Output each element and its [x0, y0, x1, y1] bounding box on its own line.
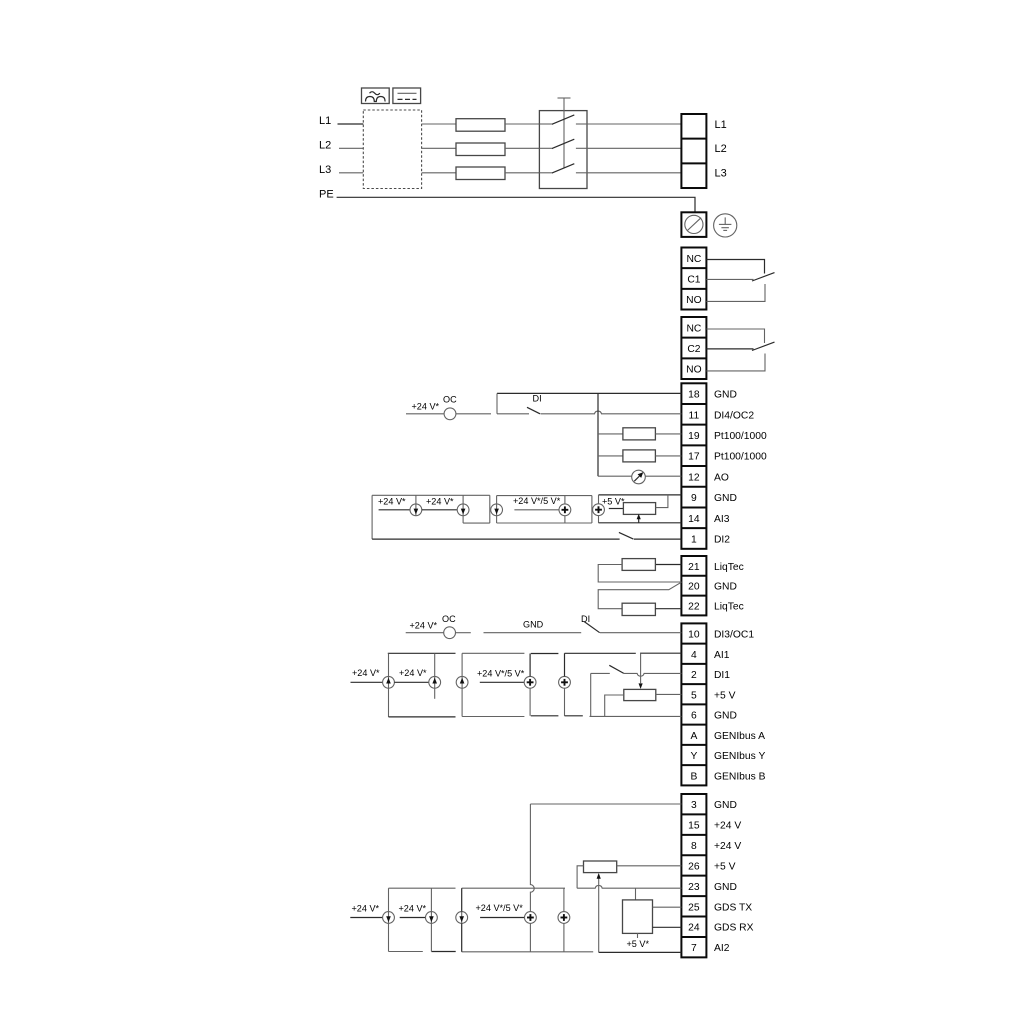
svg-text:18: 18: [688, 390, 700, 401]
svg-text:6: 6: [691, 711, 697, 722]
svg-text:NO: NO: [686, 365, 701, 376]
svg-text:AI2: AI2: [714, 943, 730, 954]
svg-text:GND: GND: [714, 882, 737, 893]
svg-text:Pt100/1000: Pt100/1000: [714, 431, 767, 442]
svg-text:LiqTec: LiqTec: [714, 562, 744, 573]
svg-text:+24 V*/5 V*: +24 V*/5 V*: [477, 669, 525, 679]
svg-text:+24 V*: +24 V*: [399, 904, 427, 914]
svg-text:DI4/OC2: DI4/OC2: [714, 410, 754, 421]
svg-text:9: 9: [691, 493, 697, 504]
svg-text:GND: GND: [714, 390, 737, 401]
svg-text:Pt100/1000: Pt100/1000: [714, 452, 767, 463]
svg-text:L3: L3: [319, 164, 331, 176]
svg-text:NC: NC: [686, 254, 701, 265]
svg-text:GND: GND: [714, 711, 737, 722]
svg-text:+5 V: +5 V: [714, 690, 736, 701]
svg-text:C1: C1: [687, 275, 700, 286]
svg-text:23: 23: [688, 882, 700, 893]
svg-text:NC: NC: [686, 323, 701, 334]
svg-text:+24 V*/5 V*: +24 V*/5 V*: [476, 903, 524, 913]
svg-text:OC: OC: [442, 614, 456, 624]
svg-text:2: 2: [691, 670, 697, 681]
svg-text:+24 V*: +24 V*: [352, 904, 380, 914]
svg-text:PE: PE: [319, 188, 334, 200]
svg-text:OC: OC: [443, 395, 457, 405]
svg-text:+24 V: +24 V: [714, 841, 741, 852]
svg-text:AO: AO: [714, 472, 729, 483]
svg-text:Y: Y: [690, 751, 697, 762]
svg-text:DI1: DI1: [714, 670, 730, 681]
svg-text:20: 20: [688, 582, 700, 593]
svg-text:4: 4: [691, 650, 697, 661]
svg-text:+24 V*: +24 V*: [412, 402, 440, 412]
svg-text:+24 V*: +24 V*: [378, 497, 406, 507]
svg-text:C2: C2: [687, 344, 700, 355]
svg-text:24: 24: [688, 923, 700, 934]
svg-text:AI3: AI3: [714, 514, 730, 525]
svg-text:GND: GND: [714, 493, 737, 504]
svg-text:8: 8: [691, 841, 697, 852]
svg-text:+5 V*: +5 V*: [627, 939, 650, 949]
svg-text:5: 5: [691, 690, 697, 701]
svg-text:19: 19: [688, 431, 700, 442]
svg-text:GDS RX: GDS RX: [714, 923, 754, 934]
svg-text:+24 V*: +24 V*: [410, 621, 438, 631]
svg-text:22: 22: [688, 602, 700, 613]
svg-text:GDS TX: GDS TX: [714, 902, 752, 913]
svg-text:L3: L3: [715, 168, 727, 180]
svg-text:DI3/OC1: DI3/OC1: [714, 630, 754, 641]
svg-text:GND: GND: [714, 582, 737, 593]
svg-text:7: 7: [691, 943, 697, 954]
svg-text:A: A: [690, 731, 697, 742]
svg-text:L1: L1: [319, 115, 331, 127]
svg-text:DI: DI: [533, 394, 542, 404]
svg-text:1: 1: [691, 534, 697, 545]
svg-text:+5 V: +5 V: [714, 861, 736, 872]
svg-text:L1: L1: [715, 119, 727, 131]
svg-text:26: 26: [688, 861, 700, 872]
svg-text:11: 11: [689, 410, 700, 421]
svg-text:GND: GND: [523, 620, 544, 630]
svg-text:NO: NO: [686, 295, 701, 306]
svg-text:DI2: DI2: [714, 534, 730, 545]
svg-text:AI1: AI1: [714, 650, 730, 661]
svg-text:14: 14: [688, 514, 700, 525]
svg-text:10: 10: [688, 630, 700, 641]
svg-text:+5 V*: +5 V*: [602, 497, 625, 507]
svg-text:L2: L2: [319, 139, 331, 151]
svg-text:GND: GND: [714, 800, 737, 811]
svg-text:17: 17: [688, 452, 700, 463]
svg-text:+24 V*: +24 V*: [399, 668, 427, 678]
svg-text:+24 V: +24 V: [714, 821, 741, 832]
svg-text:GENIbus B: GENIbus B: [714, 771, 766, 782]
svg-text:+24 V*/5 V*: +24 V*/5 V*: [513, 496, 561, 506]
svg-text:LiqTec: LiqTec: [714, 602, 744, 613]
svg-text:+24 V*: +24 V*: [352, 668, 380, 678]
svg-text:25: 25: [688, 902, 700, 913]
svg-text:3: 3: [691, 800, 697, 811]
svg-text:GENIbus Y: GENIbus Y: [714, 751, 765, 762]
svg-text:B: B: [690, 771, 697, 782]
svg-text:L2: L2: [715, 143, 727, 155]
svg-text:+24 V*: +24 V*: [426, 497, 454, 507]
svg-text:GENIbus A: GENIbus A: [714, 731, 765, 742]
svg-text:21: 21: [688, 562, 700, 573]
svg-text:15: 15: [688, 821, 700, 832]
svg-text:12: 12: [688, 472, 700, 483]
